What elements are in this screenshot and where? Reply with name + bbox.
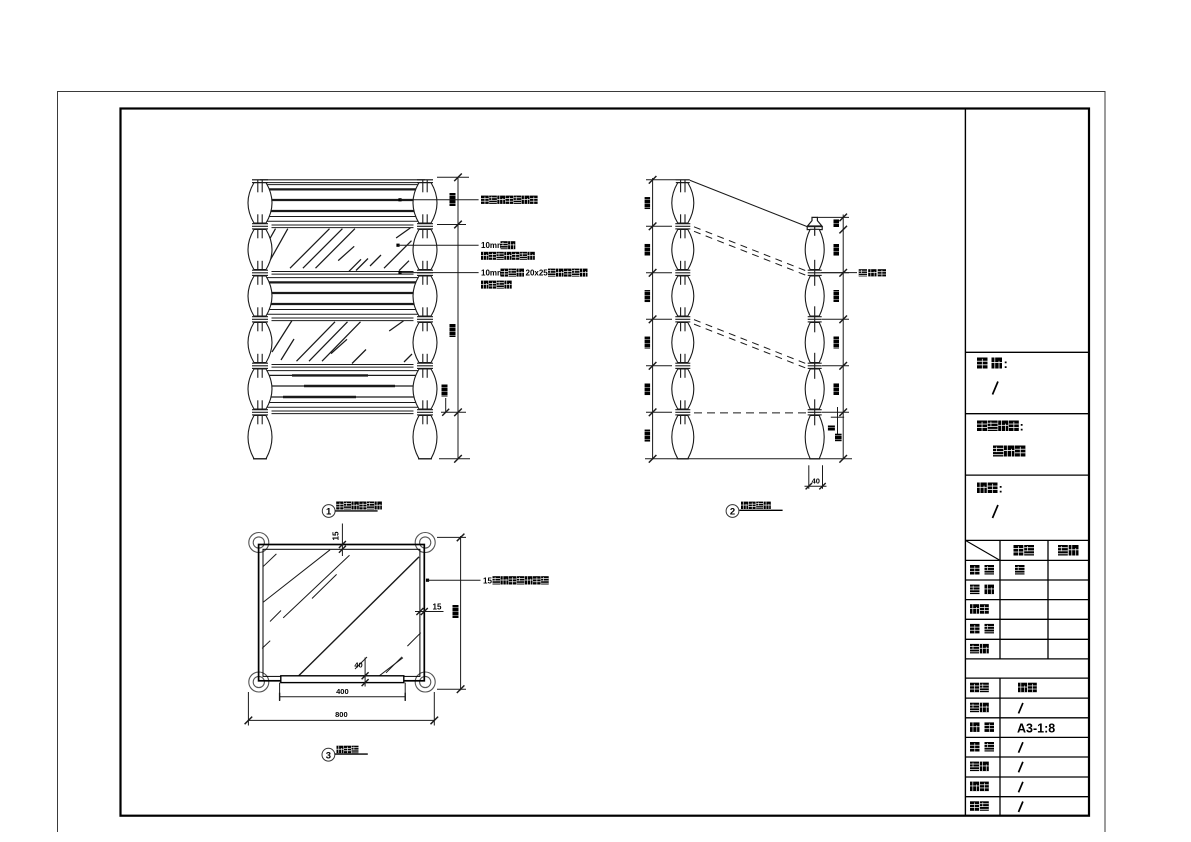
svg-text:1: 1 (326, 507, 332, 518)
svg-text::: : (1020, 419, 1024, 434)
svg-text:15: 15 (433, 602, 442, 611)
svg-text:A3-1:8: A3-1:8 (1017, 722, 1055, 736)
svg-text:40: 40 (354, 660, 362, 669)
svg-text:2: 2 (730, 507, 735, 518)
svg-text::: : (999, 481, 1003, 496)
svg-text::: : (1004, 356, 1008, 371)
svg-text:3: 3 (326, 750, 331, 761)
svg-text:20x25: 20x25 (526, 269, 549, 278)
svg-text:800: 800 (335, 710, 348, 719)
svg-text:15: 15 (483, 576, 492, 585)
svg-text:400: 400 (336, 687, 349, 696)
svg-text:15: 15 (332, 531, 341, 540)
svg-text:40: 40 (812, 476, 820, 485)
